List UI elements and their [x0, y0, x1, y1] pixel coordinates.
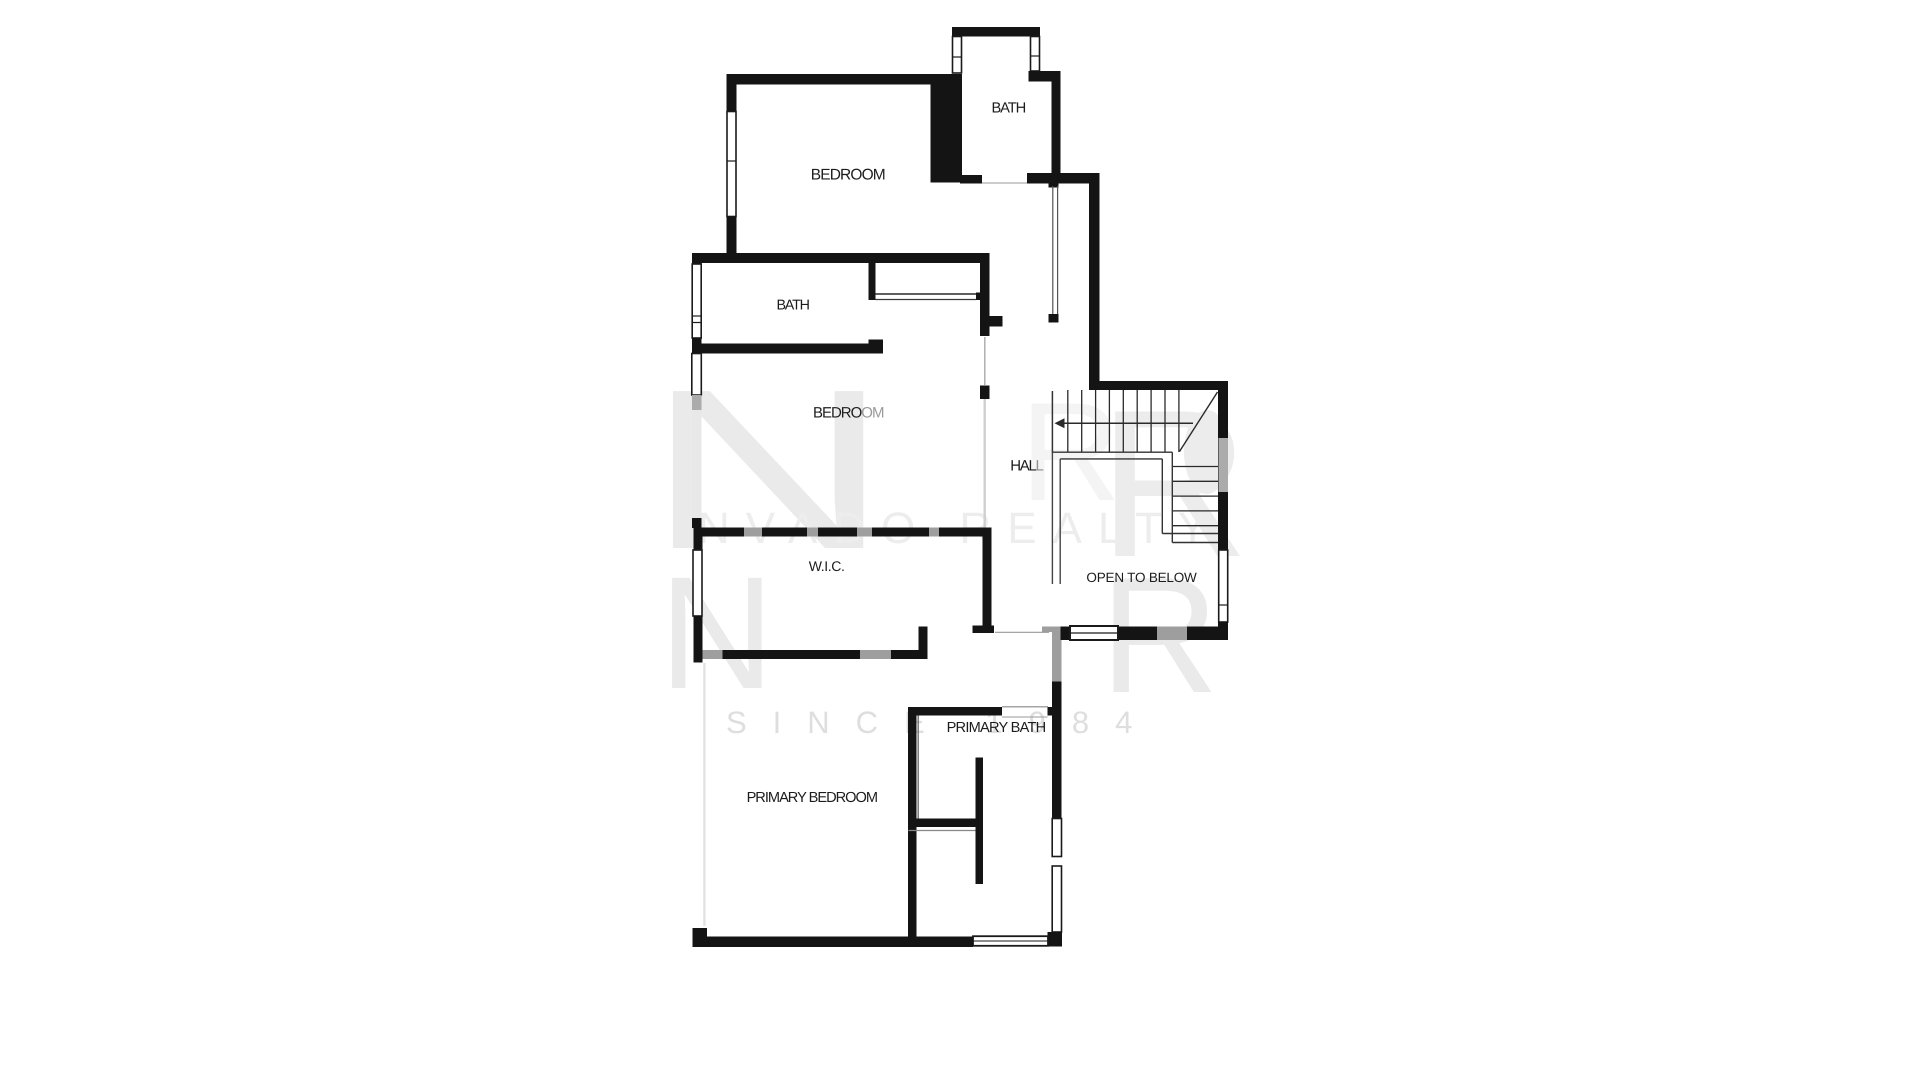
- svg-text:BEDROOM: BEDROOM: [811, 166, 885, 183]
- svg-text:W.I.C.: W.I.C.: [809, 558, 845, 574]
- svg-text:OPEN TO BELOW: OPEN TO BELOW: [1086, 570, 1197, 585]
- svg-text:PRIMARY BEDROOM: PRIMARY BEDROOM: [747, 790, 877, 806]
- svg-text:N: N: [659, 543, 775, 722]
- svg-text:BATH: BATH: [991, 100, 1025, 116]
- svg-text:BATH: BATH: [776, 297, 809, 313]
- svg-text:PRIMARY BATH: PRIMARY BATH: [947, 720, 1046, 736]
- svg-text:HALL: HALL: [1010, 458, 1043, 475]
- svg-text:BEDROOM: BEDROOM: [813, 404, 884, 421]
